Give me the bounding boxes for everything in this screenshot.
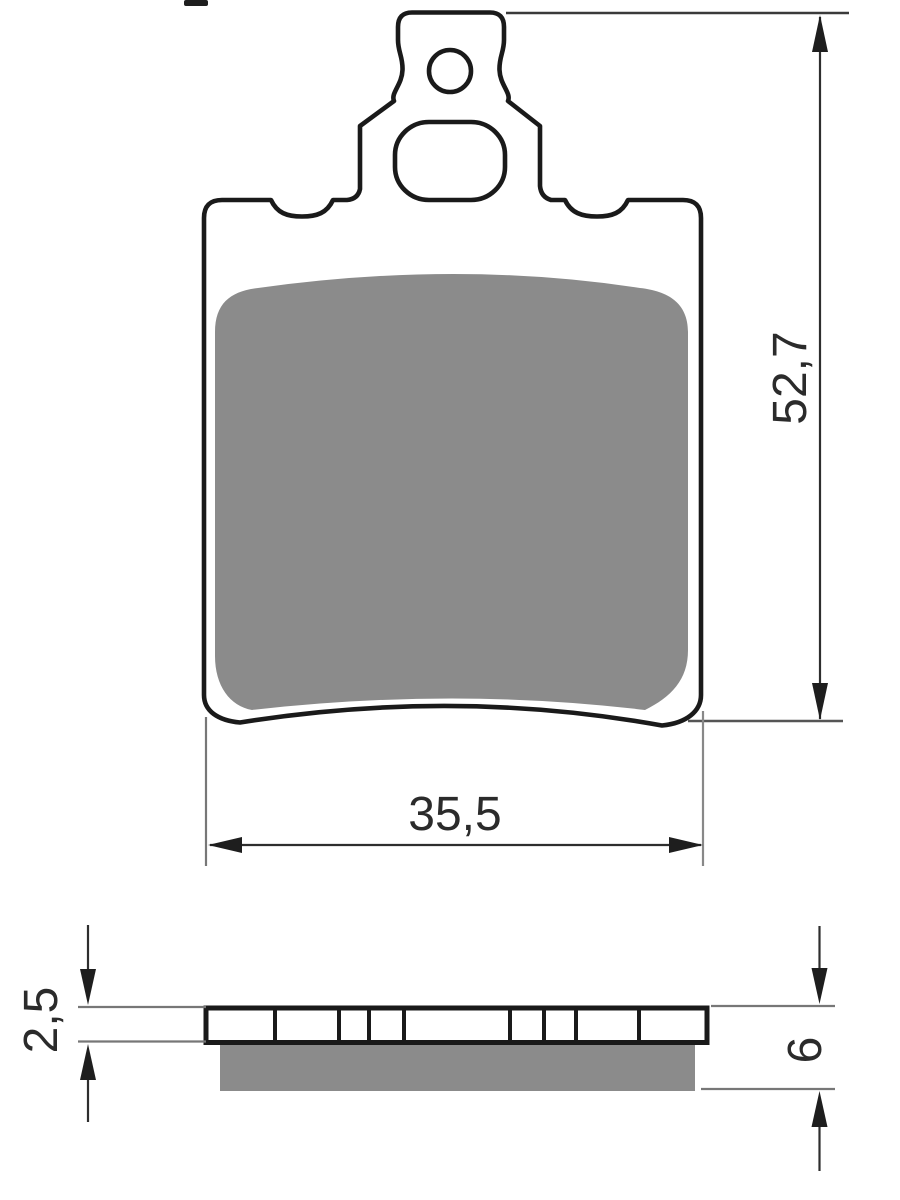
svg-text:35,5: 35,5 <box>408 788 501 841</box>
svg-text:52,7: 52,7 <box>764 331 817 424</box>
svg-text:2,5: 2,5 <box>15 987 68 1054</box>
svg-text:6: 6 <box>779 1037 832 1064</box>
